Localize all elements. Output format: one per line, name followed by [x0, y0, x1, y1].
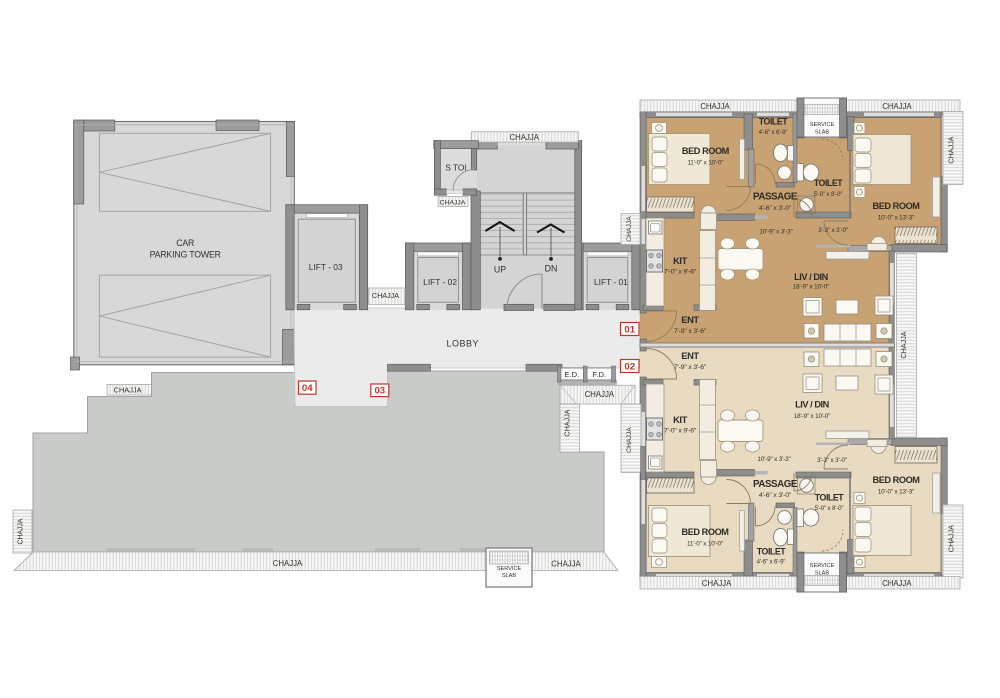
svg-text:E.D.: E.D.	[564, 370, 579, 379]
svg-text:CHAJJA: CHAJJA	[563, 409, 572, 436]
svg-text:PARKING TOWER: PARKING TOWER	[150, 250, 221, 260]
svg-text:CHAJJA: CHAJJA	[509, 133, 539, 142]
svg-text:04: 04	[302, 383, 313, 394]
svg-text:4'-6" x 6'-9": 4'-6" x 6'-9"	[757, 558, 786, 565]
svg-text:CHAJJA: CHAJJA	[626, 427, 633, 453]
svg-text:BED ROOM: BED ROOM	[873, 201, 921, 211]
svg-text:10'-0" x 13'-3": 10'-0" x 13'-3"	[878, 215, 914, 222]
svg-text:3'-3" x 3'-0": 3'-3" x 3'-0"	[817, 457, 847, 464]
svg-text:BED ROOM: BED ROOM	[873, 475, 921, 485]
svg-text:CHAJJA: CHAJJA	[372, 291, 399, 300]
svg-text:TOILET: TOILET	[759, 117, 788, 127]
svg-text:LIV / DIN: LIV / DIN	[795, 400, 830, 410]
svg-text:KIT: KIT	[673, 414, 687, 425]
svg-text:LIFT - 02: LIFT - 02	[423, 277, 457, 287]
svg-text:5'-0" x 8'-0": 5'-0" x 8'-0"	[814, 191, 843, 198]
svg-text:CAR: CAR	[176, 238, 194, 248]
svg-text:7'-0" x 9'-6": 7'-0" x 9'-6"	[664, 428, 697, 435]
svg-text:ENT: ENT	[681, 350, 699, 361]
svg-text:7'-0" x 9'-6": 7'-0" x 9'-6"	[664, 269, 697, 276]
svg-text:4'-6" x 6'-9": 4'-6" x 6'-9"	[759, 129, 788, 136]
svg-text:CHAJJA: CHAJJA	[899, 331, 908, 358]
svg-text:SERVICE: SERVICE	[810, 563, 835, 569]
svg-text:01: 01	[624, 324, 635, 335]
svg-text:SLAB: SLAB	[815, 571, 830, 577]
svg-text:10'-9" x 3'-3": 10'-9" x 3'-3"	[759, 229, 792, 236]
svg-text:11'-0" x 10'-0": 11'-0" x 10'-0"	[687, 541, 723, 548]
svg-text:CHAJJA: CHAJJA	[882, 579, 912, 588]
svg-text:CHAJJA: CHAJJA	[700, 102, 730, 111]
svg-text:CHAJJA: CHAJJA	[273, 559, 303, 568]
svg-text:S TOI: S TOI	[445, 163, 467, 173]
svg-text:02: 02	[624, 361, 635, 372]
svg-text:18'-9" x 10'-0": 18'-9" x 10'-0"	[793, 284, 829, 291]
svg-text:7'-9" x 3'-6": 7'-9" x 3'-6"	[674, 364, 707, 371]
svg-text:CHAJJA: CHAJJA	[626, 216, 633, 242]
svg-text:10'-0" x 13'-3": 10'-0" x 13'-3"	[878, 489, 914, 496]
svg-text:CHAJJA: CHAJJA	[551, 560, 581, 569]
svg-text:ENT: ENT	[681, 314, 699, 325]
svg-text:KIT: KIT	[673, 255, 687, 266]
svg-text:3'-3" x 3'-0": 3'-3" x 3'-0"	[818, 227, 848, 234]
svg-text:4'-6" x 3'-0": 4'-6" x 3'-0"	[759, 492, 792, 499]
svg-text:03: 03	[374, 385, 385, 396]
svg-text:UP: UP	[494, 265, 506, 275]
svg-text:F.D.: F.D.	[593, 370, 607, 379]
svg-text:LIV / DIN: LIV / DIN	[794, 272, 829, 282]
svg-text:CHAJJA: CHAJJA	[114, 386, 142, 395]
svg-text:PASSAGE: PASSAGE	[753, 479, 798, 490]
svg-text:PASSAGE: PASSAGE	[753, 192, 798, 203]
svg-text:TOILET: TOILET	[757, 547, 786, 557]
svg-text:SLAB: SLAB	[502, 573, 517, 579]
svg-text:SERVICE: SERVICE	[810, 122, 835, 128]
svg-text:5'-0" x 8'-0": 5'-0" x 8'-0"	[815, 505, 844, 512]
svg-text:18'-9" x 10'-0": 18'-9" x 10'-0"	[794, 413, 830, 420]
svg-text:10'-9" x 3'-3": 10'-9" x 3'-3"	[757, 456, 790, 463]
svg-text:CHAJJA: CHAJJA	[440, 200, 466, 207]
svg-text:11'-0" x 10'-0": 11'-0" x 10'-0"	[687, 160, 723, 167]
svg-text:BED ROOM: BED ROOM	[682, 527, 730, 537]
svg-text:LIFT - 03: LIFT - 03	[309, 262, 343, 272]
svg-text:7'-9" x 3'-6": 7'-9" x 3'-6"	[674, 328, 707, 335]
svg-text:BED ROOM: BED ROOM	[682, 146, 730, 156]
svg-text:LIFT - 01: LIFT - 01	[594, 277, 628, 287]
svg-text:CHAJJA: CHAJJA	[947, 525, 956, 552]
svg-text:CHAJJA: CHAJJA	[18, 518, 25, 544]
svg-text:CHAJJA: CHAJJA	[585, 390, 615, 399]
svg-text:TOILET: TOILET	[814, 178, 843, 188]
svg-text:4'-6" x 3'-0": 4'-6" x 3'-0"	[759, 205, 792, 212]
svg-text:CHAJJA: CHAJJA	[947, 136, 956, 163]
svg-text:LOBBY: LOBBY	[446, 339, 479, 349]
svg-text:SERVICE: SERVICE	[497, 566, 522, 572]
svg-text:CHAJJA: CHAJJA	[702, 579, 732, 588]
svg-text:TOILET: TOILET	[815, 493, 844, 503]
svg-text:DN: DN	[545, 264, 558, 274]
svg-text:CHAJJA: CHAJJA	[882, 102, 912, 111]
svg-text:SLAB: SLAB	[815, 130, 830, 136]
